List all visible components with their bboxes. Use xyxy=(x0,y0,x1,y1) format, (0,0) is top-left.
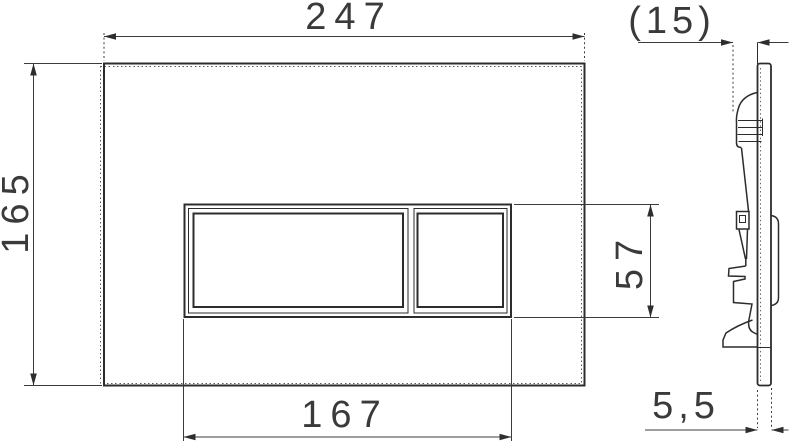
button-frame-outer xyxy=(185,205,512,318)
flush-button-large xyxy=(194,214,404,308)
arrowhead-bottom xyxy=(30,374,37,386)
arrowhead-top xyxy=(30,64,37,76)
arrowhead-left xyxy=(746,427,758,434)
mounting-clip-spring xyxy=(739,230,748,267)
mounting-clip-strut xyxy=(742,148,749,211)
arrowhead-right xyxy=(500,434,512,441)
dimensions xyxy=(24,33,789,441)
dim-label-panel-height: 57 xyxy=(611,232,649,290)
mounting-clip-latch xyxy=(737,212,750,230)
drawing-linework xyxy=(0,0,789,444)
dim-mounting-depth xyxy=(638,39,789,113)
dim-label-overall-width: 247 xyxy=(305,0,392,36)
arrowhead-right xyxy=(573,33,585,40)
side-plate-profile xyxy=(758,64,772,386)
button-frame-opening-right xyxy=(414,209,507,314)
button-frame-opening-left xyxy=(189,209,409,314)
arrowhead-bottom xyxy=(647,306,654,318)
side-button-bulge xyxy=(771,216,779,306)
plate-outline xyxy=(104,64,585,386)
flush-button-small xyxy=(418,214,504,308)
plate-hidden-rear-edge xyxy=(101,67,582,384)
arrowhead-top xyxy=(647,205,654,217)
arrowhead-left xyxy=(104,33,116,40)
mounting-clip-latch-detail xyxy=(740,216,746,223)
dim-label-mounting-depth: (15) xyxy=(628,2,716,40)
arrowhead-right xyxy=(758,39,770,46)
dim-label-overall-height: 165 xyxy=(0,166,35,253)
arrowhead-left xyxy=(184,434,196,441)
mounting-clip-ridges xyxy=(738,119,763,142)
dim-label-panel-width: 167 xyxy=(301,396,388,434)
dim-label-plate-thickness: 5,5 xyxy=(652,387,720,425)
arrowhead-left xyxy=(721,39,733,46)
arrowhead-right xyxy=(772,427,784,434)
side-view xyxy=(723,43,779,386)
mounting-clip-bottom-hook xyxy=(723,320,758,347)
technical-drawing: 247 165 167 57 (15) 5,5 xyxy=(0,0,789,444)
